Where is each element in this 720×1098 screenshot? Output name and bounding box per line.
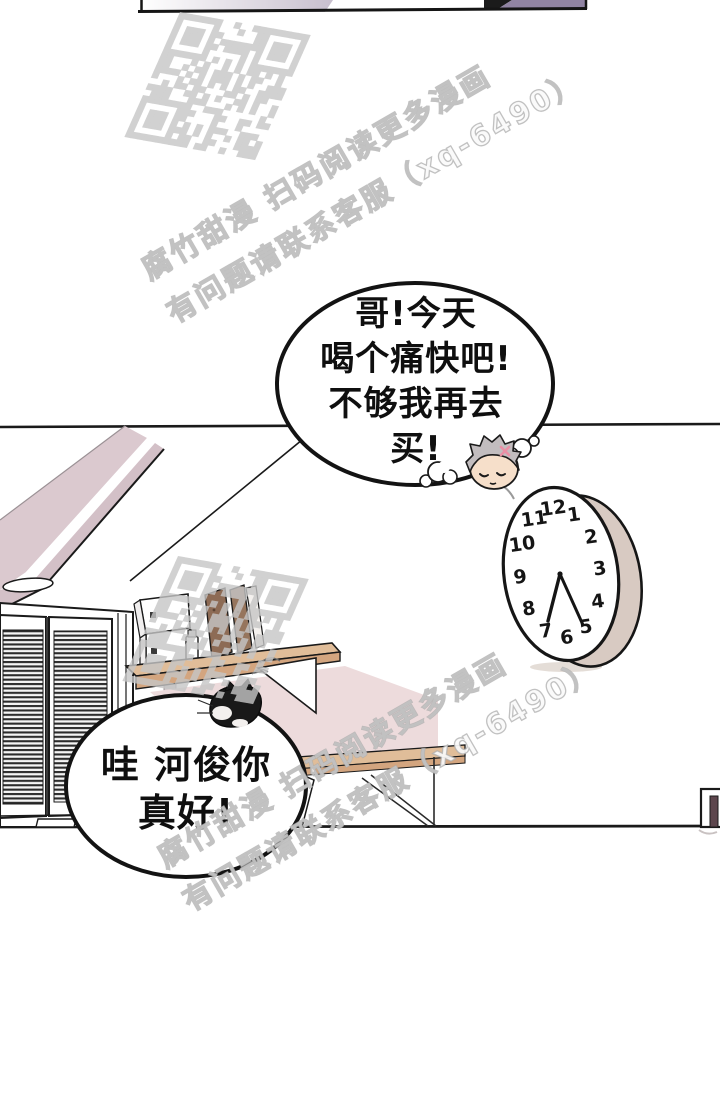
qr-module [214,95,224,103]
qr-module [151,71,161,79]
qr-module [234,124,244,132]
watermark-qr-icon [124,12,310,160]
door-frame [699,789,720,834]
speech-bubble-1-text: 哥!今天 喝个痛快吧! 不够我再去 买! [297,292,535,472]
speech-line: 喝个痛快吧! [297,337,535,382]
door-frame-bar [710,796,718,827]
qr-module [236,106,246,114]
beam-face [0,426,147,590]
drawer-handle [151,648,157,654]
speech-line: 不够我再去 [297,382,535,427]
qr-module [181,64,191,72]
comic-page: 123456789101112 [0,0,720,1098]
qr-module [223,135,233,143]
qr-module [267,111,277,119]
qr-module [248,108,258,116]
qr-module [233,67,243,75]
clock-number: 10 [508,532,537,557]
qr-module [264,72,274,80]
door-frame-shadow [699,830,717,834]
cat-paw [232,719,248,727]
cat-muzzle [212,706,232,720]
qr-module [237,29,247,37]
qr-module [219,83,229,91]
qr-module [246,82,256,90]
clock-hanger-mark [503,486,514,499]
qr-module [211,56,221,64]
qr-module [233,22,243,30]
book-texture-dot [213,609,216,612]
clock-number: 12 [539,496,568,521]
qr-module [184,71,194,79]
closet-door-left-slats [3,630,43,804]
qr-module [223,103,233,111]
qr-module [231,566,241,574]
previous-panel-remnant [138,0,587,12]
speech-line: 买! [297,427,535,472]
clock-center-pin [557,571,562,576]
qr-module [217,147,227,155]
qr-module [207,81,217,89]
qr-module [190,59,200,67]
qr-module [262,616,272,624]
speech-line: 哥!今天 [297,292,535,337]
qr-module [235,573,245,581]
qr-module [192,130,202,138]
